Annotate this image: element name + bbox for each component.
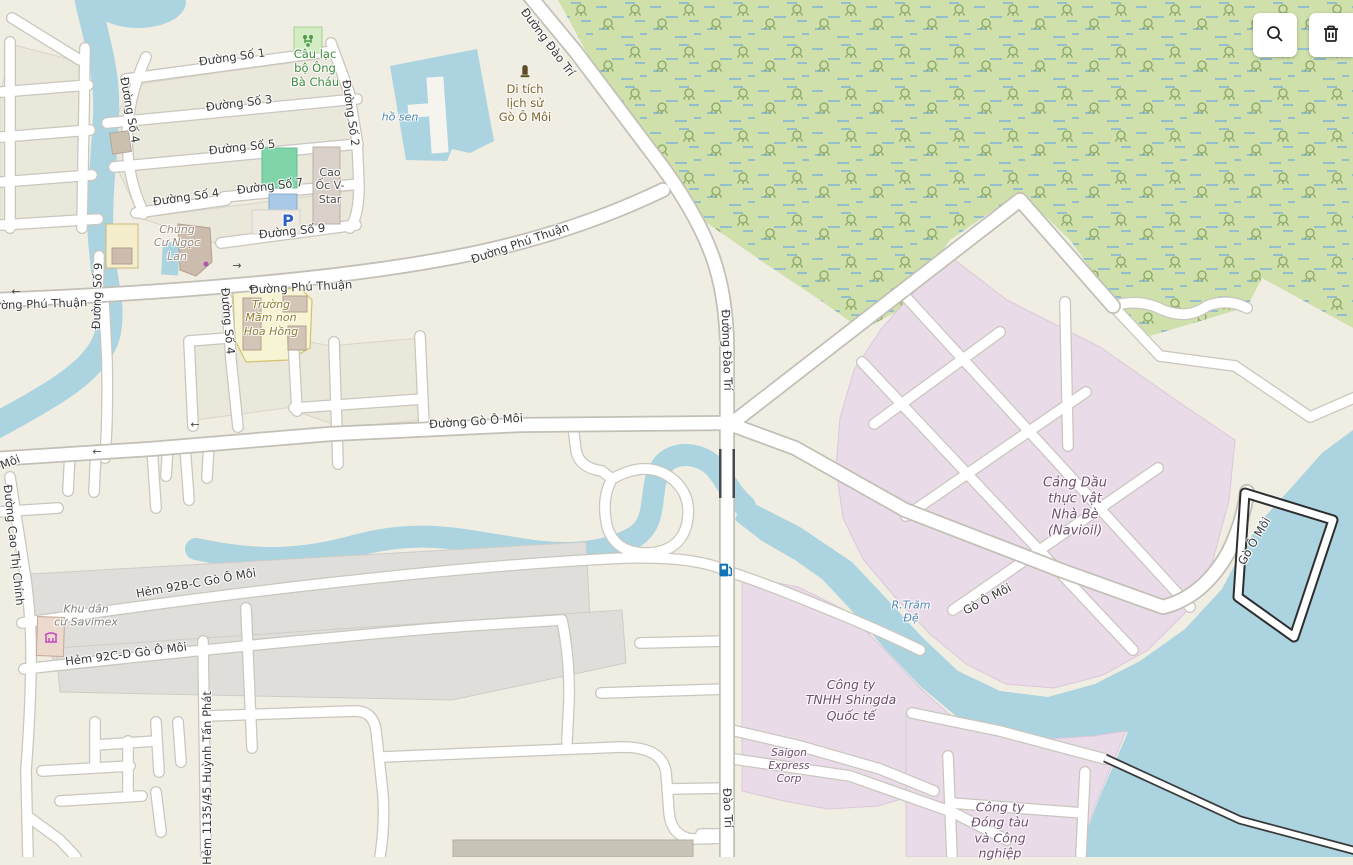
trash-icon bbox=[1320, 23, 1342, 48]
school-building-3 bbox=[288, 326, 306, 350]
map-toolbar bbox=[1253, 13, 1353, 57]
map-base-layer bbox=[0, 0, 1353, 857]
green-building bbox=[262, 148, 297, 188]
savimex-building bbox=[36, 617, 64, 657]
parking-lot bbox=[252, 210, 300, 234]
delete-button[interactable] bbox=[1309, 13, 1353, 57]
v-star-building bbox=[313, 147, 340, 224]
school-building-1 bbox=[243, 298, 261, 350]
long-building-s bbox=[453, 840, 693, 857]
club-grounds bbox=[294, 27, 322, 53]
school-building-2 bbox=[283, 296, 307, 312]
magnifier-icon bbox=[1264, 23, 1286, 48]
search-button[interactable] bbox=[1253, 13, 1297, 57]
cream-building-inner bbox=[112, 248, 132, 264]
small-building-nw bbox=[110, 131, 132, 154]
map-canvas[interactable]: Đường Số 1Câu lạc bộ Ông Bà CháuĐường Số… bbox=[0, 0, 1353, 857]
